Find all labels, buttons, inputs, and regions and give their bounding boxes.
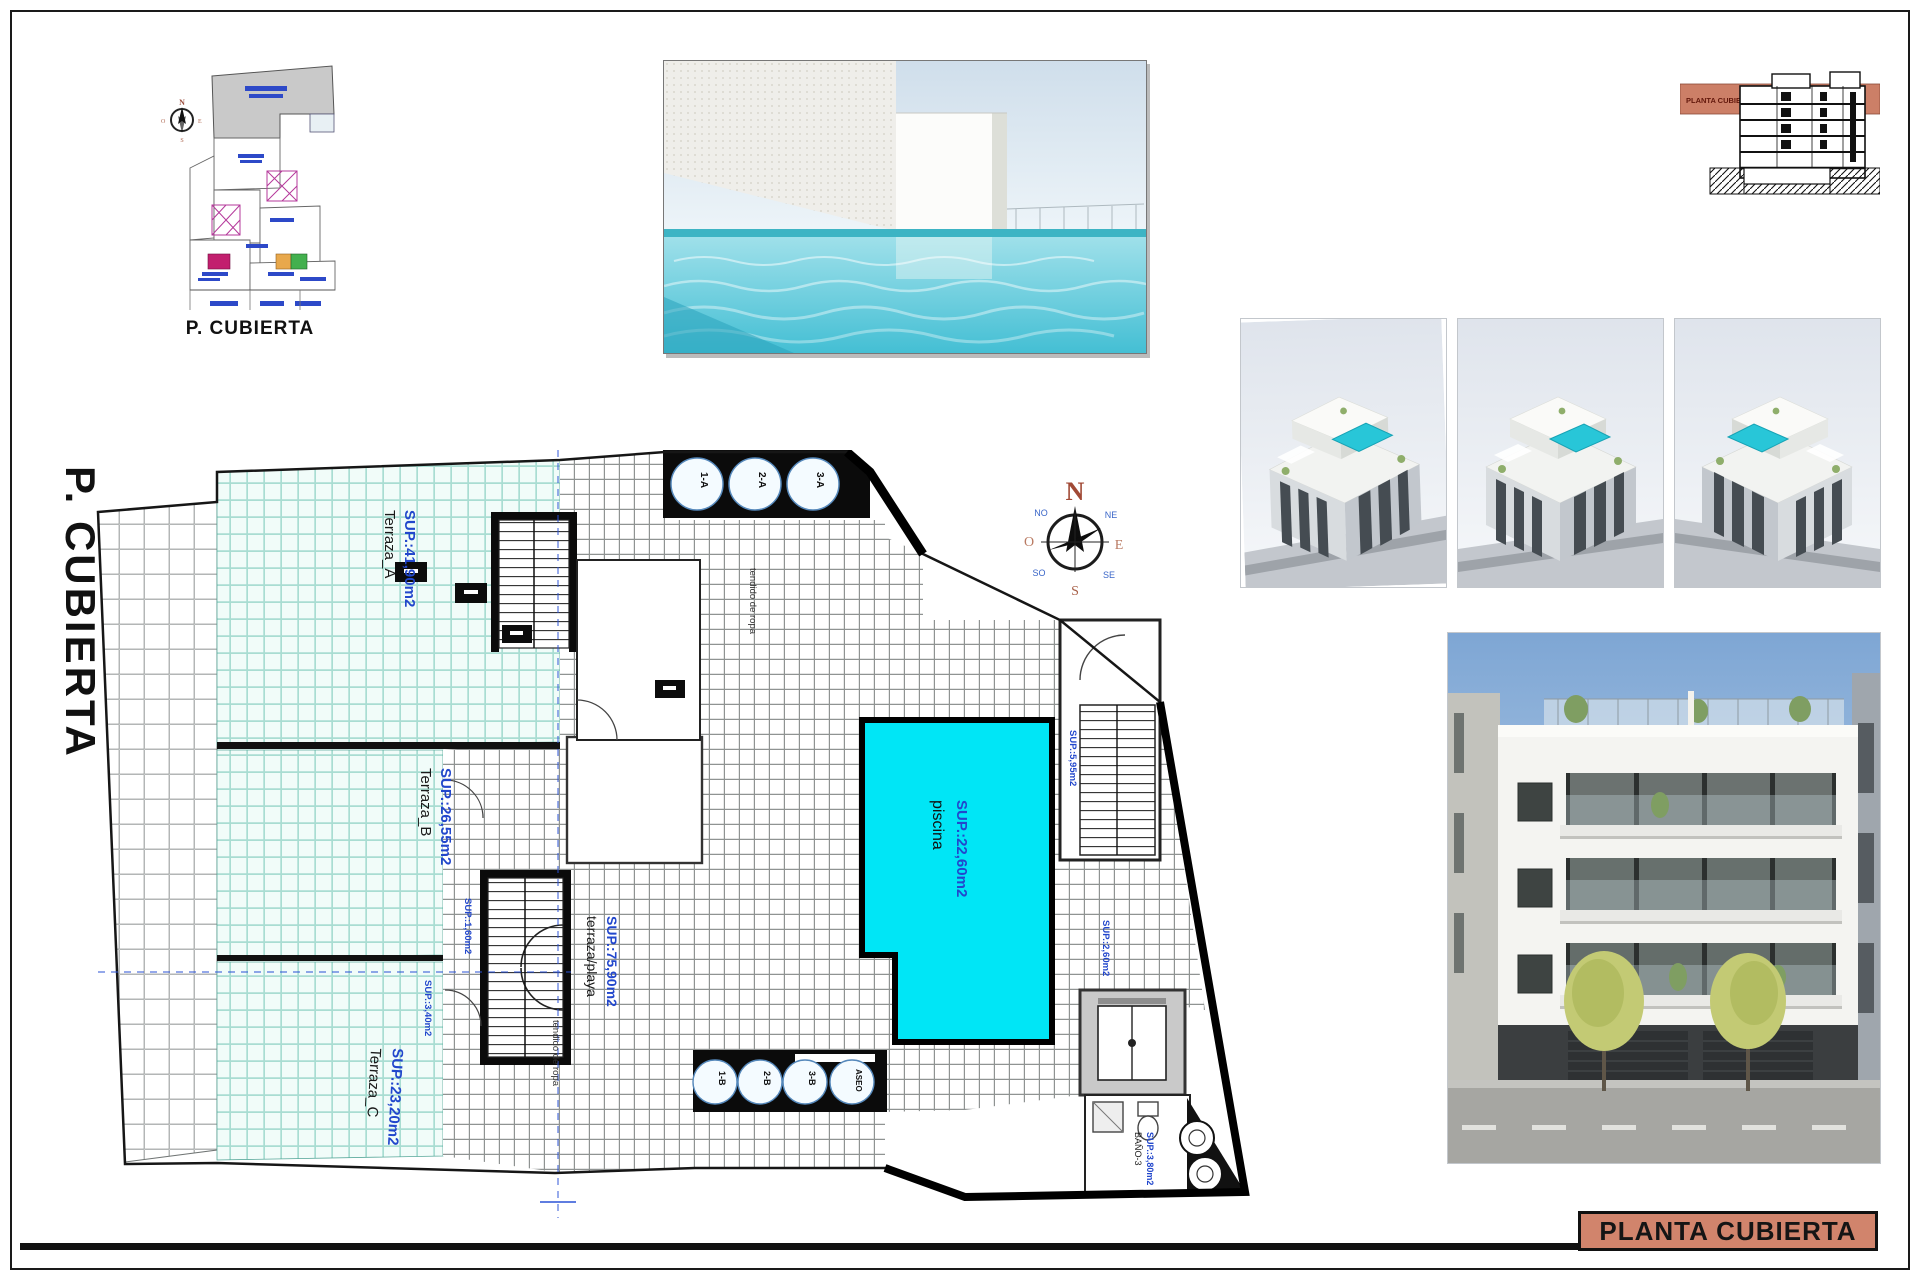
wall-a-b bbox=[217, 742, 560, 749]
svg-text:3-A: 3-A bbox=[814, 472, 825, 488]
aerial-render-2 bbox=[1457, 318, 1664, 588]
title-block: PLANTA CUBIERTA bbox=[1578, 1211, 1878, 1251]
pool-area: SUP.:22,60m2 bbox=[953, 800, 970, 897]
svg-text:N: N bbox=[179, 98, 185, 107]
render-water bbox=[664, 229, 1146, 353]
svg-text:O: O bbox=[1024, 535, 1034, 550]
elevator bbox=[1080, 990, 1185, 1095]
beach-terrace-name: terraza/playa bbox=[584, 916, 600, 997]
wall-b-c bbox=[217, 955, 443, 961]
terraza-b-area: SUP.:26,55m2 bbox=[437, 768, 454, 865]
clothesline-label-2: tendido de ropa bbox=[550, 1020, 561, 1087]
title-block-label: PLANTA CUBIERTA bbox=[1599, 1216, 1856, 1247]
key-plan-compass-icon: N S E O bbox=[161, 98, 202, 144]
terraza-a-area: SUP.:41,90m2 bbox=[401, 510, 418, 607]
svg-text:O: O bbox=[161, 119, 166, 125]
key-plan-chip-green bbox=[291, 254, 307, 269]
svg-text:SE: SE bbox=[1103, 570, 1115, 580]
bath-area: SUP.:3,80m2 bbox=[1145, 1132, 1155, 1185]
key-plan: N S E O bbox=[150, 58, 350, 313]
stair-area-3: SUP.:2,60m2 bbox=[1100, 920, 1111, 976]
upper-room bbox=[577, 560, 700, 740]
plan-sheet: P. CUBIERTA N S E O bbox=[0, 0, 1920, 1280]
svg-text:E: E bbox=[198, 119, 202, 125]
skylight-strip-bottom: 1-B 2-B 3-B ASEO bbox=[693, 1050, 887, 1112]
patio-opening bbox=[567, 737, 702, 863]
render-cube bbox=[896, 113, 1007, 245]
bath-name: BAÑO-3 bbox=[1133, 1132, 1143, 1166]
svg-text:E: E bbox=[1115, 538, 1124, 553]
svg-text:1-A: 1-A bbox=[698, 472, 709, 488]
section-thumbnail: PLANTA CUBIERTA bbox=[1680, 56, 1880, 208]
svg-text:N: N bbox=[1066, 477, 1085, 506]
svg-text:1-B: 1-B bbox=[717, 1071, 727, 1086]
stair-area-2: SUP.:3,40m2 bbox=[422, 980, 433, 1036]
svg-text:SO: SO bbox=[1032, 568, 1045, 578]
svg-text:S: S bbox=[1071, 584, 1079, 599]
left-terrace-strip bbox=[98, 502, 217, 1162]
pool-render bbox=[663, 60, 1147, 354]
terraza-c-name: Terraza_C bbox=[363, 1048, 384, 1118]
facade-ground-floor bbox=[1498, 1025, 1858, 1087]
key-plan-pool-chip bbox=[310, 114, 334, 132]
terraza-c-region bbox=[217, 962, 443, 1160]
beach-terrace-area: SUP.:75,90m2 bbox=[604, 916, 620, 1007]
aerial-render-3 bbox=[1674, 318, 1881, 588]
svg-text:2-B: 2-B bbox=[762, 1071, 772, 1086]
section-ground bbox=[1710, 168, 1880, 194]
bottom-rule bbox=[20, 1243, 1580, 1250]
svg-text:NE: NE bbox=[1105, 510, 1118, 520]
section-building bbox=[1740, 72, 1865, 178]
svg-text:2-A: 2-A bbox=[756, 472, 767, 488]
svg-text:ASEO: ASEO bbox=[854, 1069, 863, 1092]
terraza-a-name: Terraza_A bbox=[381, 510, 398, 578]
facade-render bbox=[1447, 632, 1881, 1164]
key-plan-chip-orange bbox=[276, 254, 291, 269]
facade-small-windows bbox=[1518, 783, 1552, 993]
svg-text:NO: NO bbox=[1034, 508, 1048, 518]
skylight-strip-top: 1-A 2-A 3-A bbox=[663, 450, 870, 518]
stair-area-4: SUP.:5,95m2 bbox=[1067, 730, 1078, 786]
facade-street bbox=[1448, 1080, 1880, 1163]
svg-text:S: S bbox=[180, 138, 183, 144]
pool-name: piscina bbox=[929, 800, 946, 850]
aerial-render-1 bbox=[1240, 318, 1447, 588]
plan-compass-icon: N S E O NO NE SO SE bbox=[1024, 477, 1123, 599]
clothesline-label-1: tendido de ropa bbox=[747, 568, 758, 635]
key-plan-caption: P. CUBIERTA bbox=[150, 318, 350, 340]
terraza-b-region bbox=[217, 750, 443, 958]
terraza-b-name: Terraza_B bbox=[417, 768, 434, 836]
key-plan-drawing: N S E O bbox=[150, 58, 350, 313]
stair-area-1: SUP.:1,60m2 bbox=[462, 898, 473, 954]
floor-plan: 1-A 2-A 3-A 1-B 2-B 3-B ASEO bbox=[95, 450, 1250, 1220]
key-plan-chip-magenta bbox=[208, 254, 230, 269]
svg-text:3-B: 3-B bbox=[807, 1071, 817, 1086]
